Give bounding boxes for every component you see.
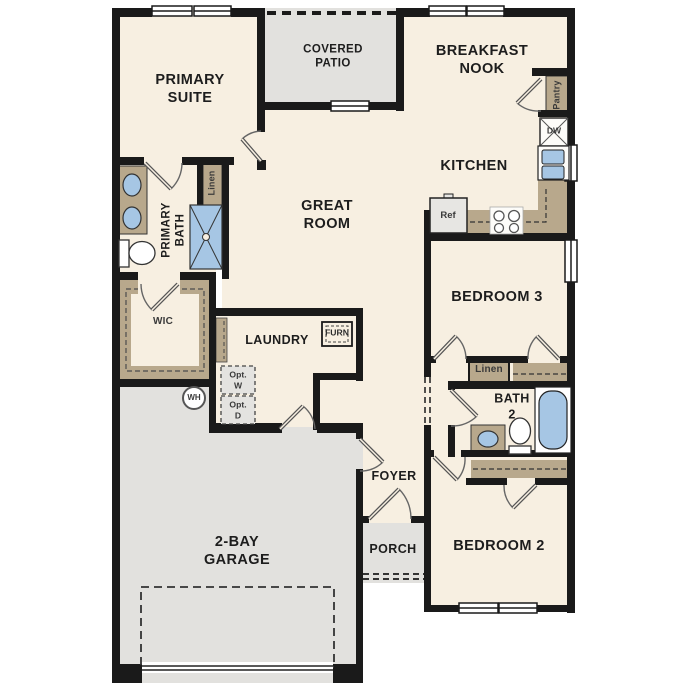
room-label-laundry: LAUNDRY xyxy=(245,333,308,349)
label-water-heater: WH xyxy=(187,393,200,403)
garage-door xyxy=(142,662,333,673)
room-label-porch: PORCH xyxy=(369,542,416,558)
room-label-foyer: FOYER xyxy=(371,469,416,485)
bathtub xyxy=(535,387,571,453)
closet-bedroom2 xyxy=(471,460,573,478)
label-opt-dryer: Opt. D xyxy=(229,399,246,420)
room-label-great-room: GREAT ROOM xyxy=(301,197,353,233)
label-linen-hall: Linen xyxy=(475,364,503,377)
room-label-bedroom2: BEDROOM 2 xyxy=(453,537,544,555)
floor-plan: PRIMARY SUITE COVERED PATIO BREAKFAST NO… xyxy=(0,0,687,687)
floor-plan-drawing xyxy=(0,0,687,687)
bath2-toilet xyxy=(509,418,531,454)
label-linen-primary: Linen xyxy=(206,171,217,196)
room-label-wic: WIC xyxy=(153,316,173,329)
label-furnace: FURN xyxy=(325,328,349,339)
room-label-primary-suite: PRIMARY SUITE xyxy=(155,71,224,107)
bath2-vanity xyxy=(471,425,505,453)
room-label-bath2: BATH 2 xyxy=(494,391,529,422)
room-label-covered-patio: COVERED PATIO xyxy=(303,43,363,72)
primary-vanity xyxy=(119,166,147,234)
laundry-cabinet xyxy=(216,318,227,362)
room-label-garage: 2-BAY GARAGE xyxy=(204,533,270,569)
room-label-breakfast-nook: BREAKFAST NOOK xyxy=(436,42,528,78)
cooktop xyxy=(490,207,523,234)
room-label-bedroom3: BEDROOM 3 xyxy=(451,288,542,306)
label-opt-washer: Opt. W xyxy=(229,369,246,390)
label-pantry: Pantry xyxy=(551,80,562,109)
room-label-kitchen: KITCHEN xyxy=(440,157,507,175)
closet-bedroom3 xyxy=(513,363,568,383)
kitchen-sink xyxy=(538,146,569,180)
label-refrigerator: Ref xyxy=(440,210,455,222)
room-label-primary-bath: PRIMARY BATH xyxy=(160,202,189,257)
shower xyxy=(190,205,222,269)
label-dishwasher: DW xyxy=(547,126,561,137)
primary-toilet xyxy=(119,240,155,267)
